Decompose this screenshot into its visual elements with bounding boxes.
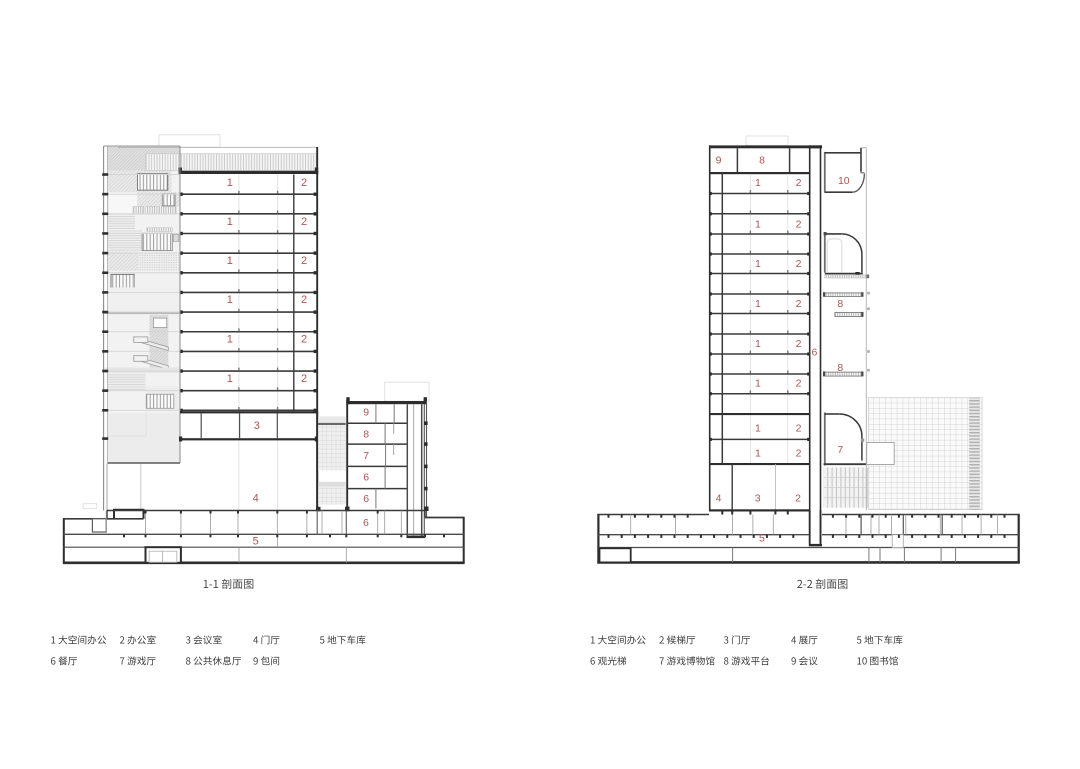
svg-text:2: 2 (301, 334, 307, 346)
svg-text:7: 7 (837, 444, 843, 456)
svg-text:1: 1 (227, 294, 233, 306)
svg-text:6: 6 (363, 517, 369, 529)
svg-text:3: 3 (254, 420, 260, 432)
svg-text:4: 4 (253, 492, 259, 504)
svg-text:2: 2 (301, 255, 307, 267)
svg-text:2: 2 (796, 298, 802, 310)
svg-text:1: 1 (227, 334, 233, 346)
svg-text:9: 9 (716, 154, 722, 166)
svg-text:6: 6 (363, 472, 369, 484)
svg-text:1: 1 (227, 216, 233, 228)
svg-text:8: 8 (363, 428, 369, 440)
svg-text:5: 5 (759, 532, 765, 544)
svg-text:1: 1 (227, 255, 233, 267)
svg-text:3: 3 (755, 492, 761, 504)
svg-text:6: 6 (363, 493, 369, 505)
svg-text:7: 7 (363, 450, 369, 462)
svg-text:2: 2 (796, 422, 802, 434)
svg-text:2: 2 (301, 294, 307, 306)
svg-text:2: 2 (796, 338, 802, 350)
svg-text:6: 6 (811, 347, 817, 359)
svg-text:2: 2 (301, 177, 307, 189)
svg-text:1: 1 (755, 338, 761, 350)
svg-text:10: 10 (838, 175, 850, 187)
svg-text:2: 2 (795, 492, 801, 504)
svg-text:1: 1 (227, 177, 233, 189)
svg-text:1: 1 (755, 177, 761, 189)
svg-text:2: 2 (796, 177, 802, 189)
svg-text:1: 1 (755, 448, 761, 460)
svg-text:5: 5 (253, 536, 259, 548)
svg-text:2: 2 (796, 258, 802, 270)
svg-text:1: 1 (755, 298, 761, 310)
svg-text:1: 1 (755, 258, 761, 270)
svg-text:1: 1 (755, 219, 761, 231)
svg-text:2: 2 (301, 216, 307, 228)
svg-text:8: 8 (759, 154, 765, 166)
svg-text:2: 2 (796, 377, 802, 389)
svg-text:9: 9 (363, 407, 369, 419)
svg-text:2: 2 (796, 219, 802, 231)
svg-text:1: 1 (755, 377, 761, 389)
svg-text:2: 2 (301, 373, 307, 385)
svg-text:8: 8 (837, 298, 843, 310)
svg-text:2: 2 (796, 448, 802, 460)
svg-text:4: 4 (716, 492, 722, 504)
svg-text:1: 1 (227, 373, 233, 385)
svg-text:1: 1 (755, 422, 761, 434)
